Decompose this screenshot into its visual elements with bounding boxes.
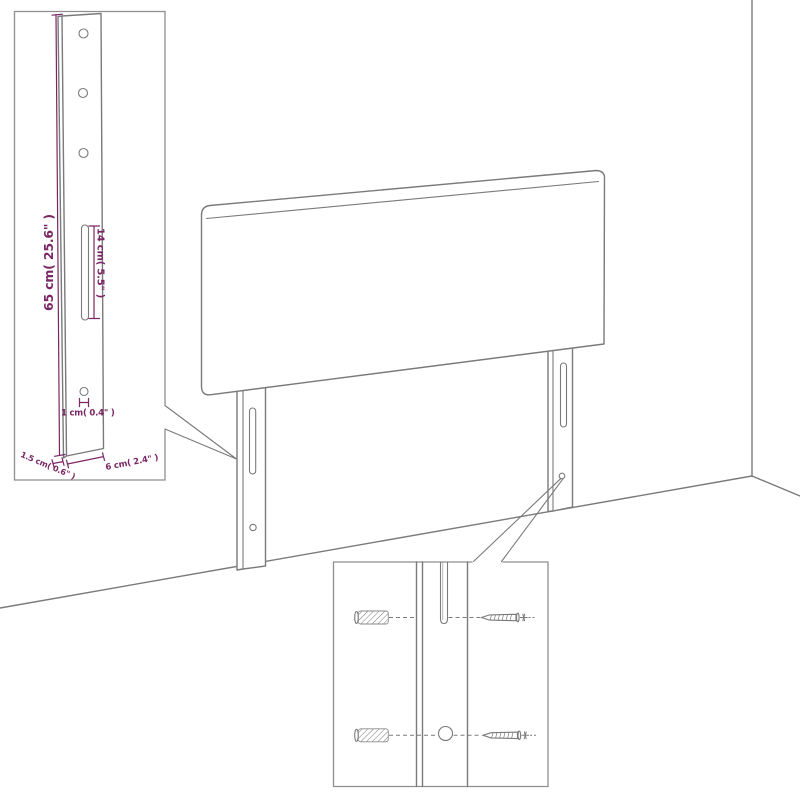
left-leg-hole: [250, 524, 256, 530]
wall-floor-right-line: [752, 476, 800, 496]
post-slot: [82, 225, 89, 320]
screw-icon-top: [482, 613, 535, 622]
hardware-leg-slot: [441, 562, 448, 624]
diagram-canvas: 65 cm( 25.6" ) 14 cm( 5.5" ) 1 cm( 0.4" …: [0, 0, 800, 800]
dimension-label-height: 65 cm( 25.6" ): [41, 214, 56, 311]
post-hole-middle: [79, 89, 88, 98]
product-diagram-svg: 65 cm( 25.6" ) 14 cm( 5.5" ) 1 cm( 0.4" …: [0, 0, 800, 800]
left-leg-slot: [250, 408, 256, 474]
right-leg-hole: [559, 473, 565, 479]
hardware-leg-drawing: [417, 562, 468, 787]
inset-box-hardware-detail: [334, 562, 549, 787]
dimension-width: 6 cm( 2.4" ): [67, 453, 160, 473]
post-bottom-hole: [80, 388, 88, 396]
headboard: [202, 171, 605, 395]
dimension-label-width: 6 cm( 2.4" ): [105, 453, 160, 473]
wall-plug-icon-top: [355, 611, 389, 624]
post-hole-lower: [79, 149, 88, 158]
hardware-leg-hole: [439, 727, 453, 741]
leg-cutouts: [250, 363, 567, 531]
headboard-panel: [202, 171, 605, 395]
dimension-label-slot: 14 cm( 5.5" ): [95, 228, 106, 298]
callout-wedge-left: [165, 406, 237, 460]
inset-box-leg-detail: 65 cm( 25.6" ) 14 cm( 5.5" ) 1 cm( 0.4" …: [15, 12, 166, 482]
wall-plug-icon-bottom: [355, 729, 389, 742]
screw-icon-bottom: [483, 731, 536, 740]
dimension-hole-diameter: 1 cm( 0.4" ): [61, 399, 115, 419]
right-leg-slot: [561, 363, 567, 427]
wall-floor-left-line: [0, 476, 752, 608]
dimension-label-hole: 1 cm( 0.4" ): [61, 409, 115, 419]
post-hole-top: [79, 29, 88, 38]
